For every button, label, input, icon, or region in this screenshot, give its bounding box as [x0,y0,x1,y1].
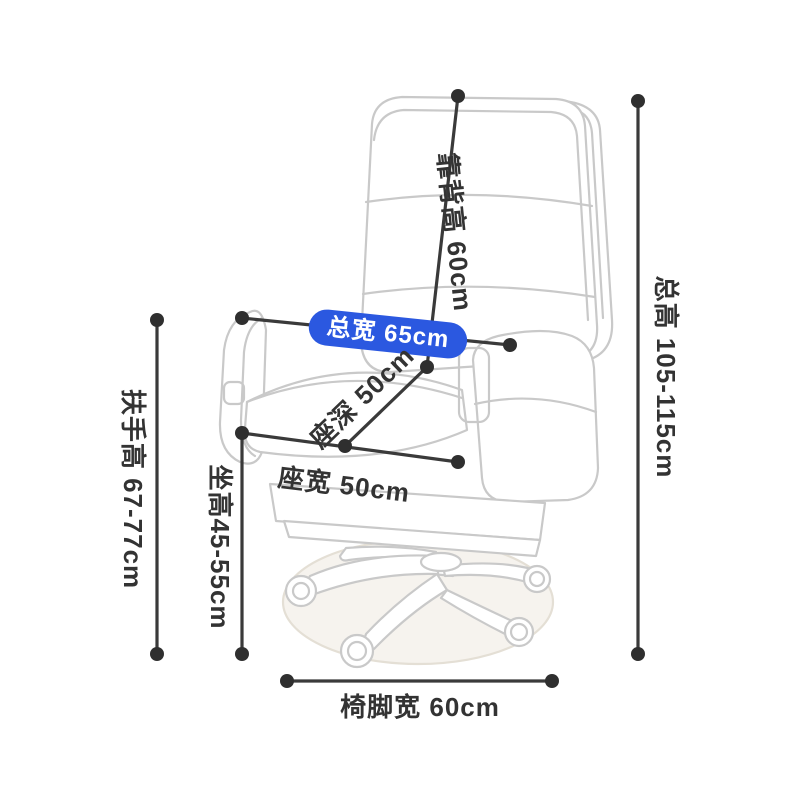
seat-height-label: 坐高45-55cm [207,464,233,629]
total-height-label: 总高 105-115cm [653,276,679,479]
right-armrest [459,331,598,502]
base-hub [421,553,461,571]
armrest-height-label: 扶手高 67-77cm [120,389,146,589]
office-chair-illustration [220,97,612,667]
product-dimension-diagram: 靠背高 60cm 总宽 65cm 座深 50cm 座宽 50cm 坐高45-55… [0,0,800,800]
base-width-label: 椅脚宽 60cm [340,694,500,720]
